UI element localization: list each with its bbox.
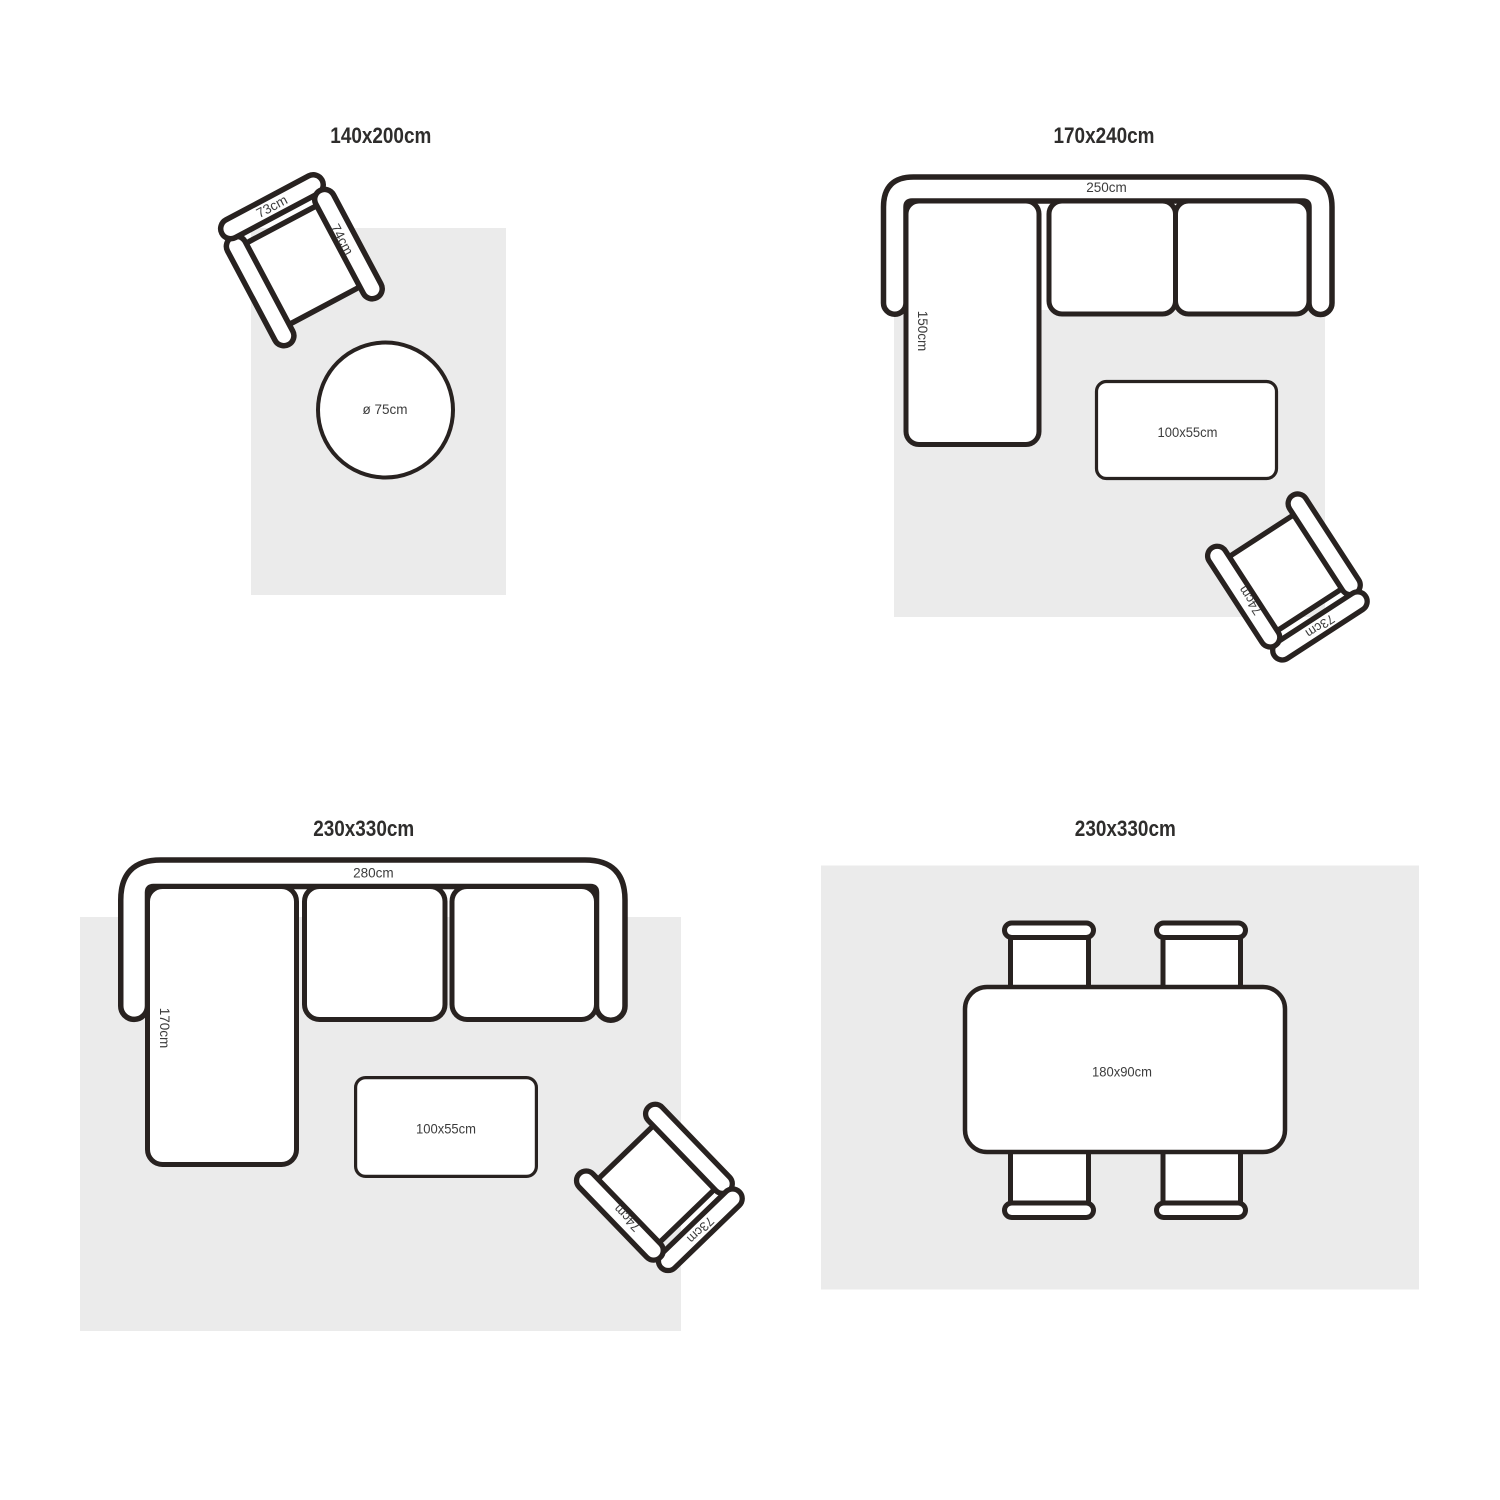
svg-text:ø 75cm: ø 75cm: [362, 402, 407, 417]
svg-text:280cm: 280cm: [353, 866, 394, 881]
svg-text:230x330cm: 230x330cm: [1075, 816, 1176, 841]
svg-text:180x90cm: 180x90cm: [1092, 1065, 1152, 1080]
svg-text:170x240cm: 170x240cm: [1054, 123, 1155, 148]
svg-text:170cm: 170cm: [157, 1008, 172, 1049]
svg-text:230x330cm: 230x330cm: [313, 816, 414, 841]
svg-text:250cm: 250cm: [1086, 180, 1127, 195]
svg-text:140x200cm: 140x200cm: [330, 123, 431, 148]
svg-text:150cm: 150cm: [915, 311, 930, 352]
svg-text:100x55cm: 100x55cm: [416, 1122, 476, 1137]
svg-text:100x55cm: 100x55cm: [1158, 425, 1218, 440]
